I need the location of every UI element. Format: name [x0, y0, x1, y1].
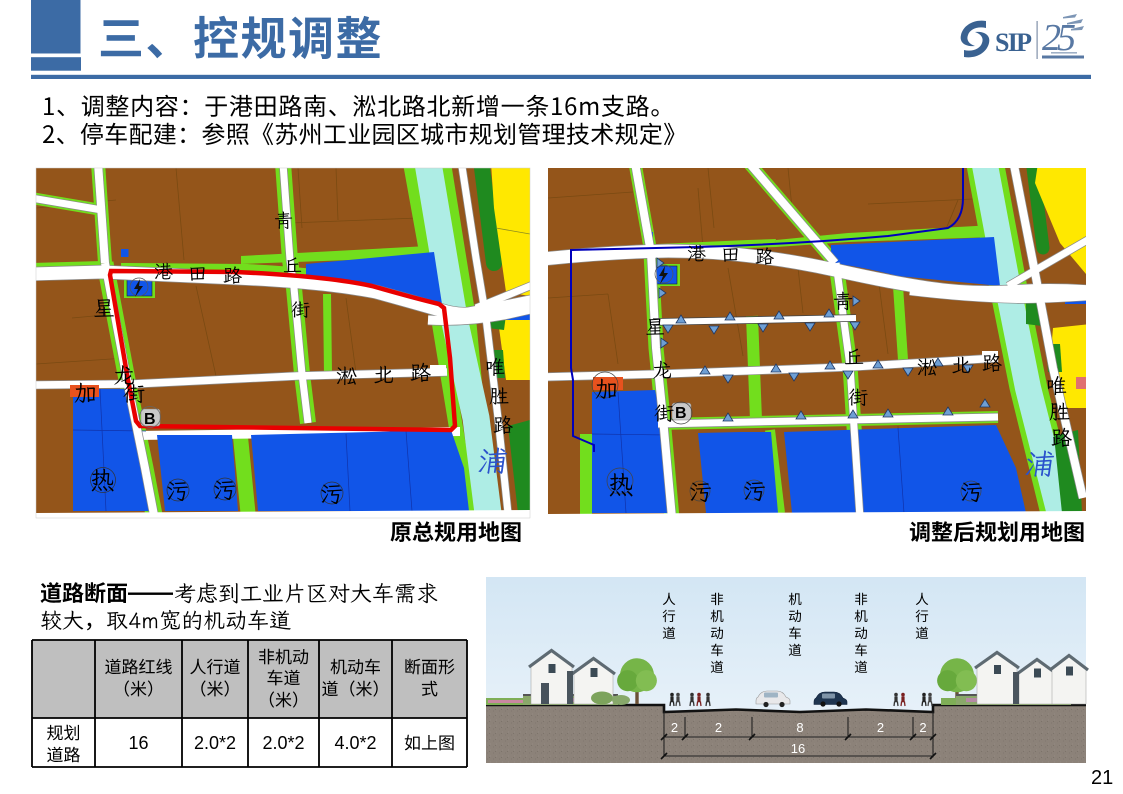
svg-text:2: 2 [671, 720, 678, 735]
svg-text:2.0*2: 2.0*2 [194, 733, 236, 753]
svg-text:B: B [675, 405, 687, 422]
svg-text:16: 16 [791, 741, 805, 756]
svg-text:16: 16 [128, 733, 148, 753]
svg-text:2: 2 [877, 720, 884, 735]
svg-text:4.0*2: 4.0*2 [334, 733, 376, 753]
svg-text:8: 8 [796, 720, 803, 735]
svg-text:2: 2 [919, 720, 926, 735]
svg-text:B: B [144, 411, 156, 428]
svg-text:SIP: SIP [995, 28, 1032, 57]
svg-text:2: 2 [715, 720, 722, 735]
svg-text:2.0*2: 2.0*2 [262, 733, 304, 753]
svg-text:21: 21 [1091, 767, 1113, 789]
